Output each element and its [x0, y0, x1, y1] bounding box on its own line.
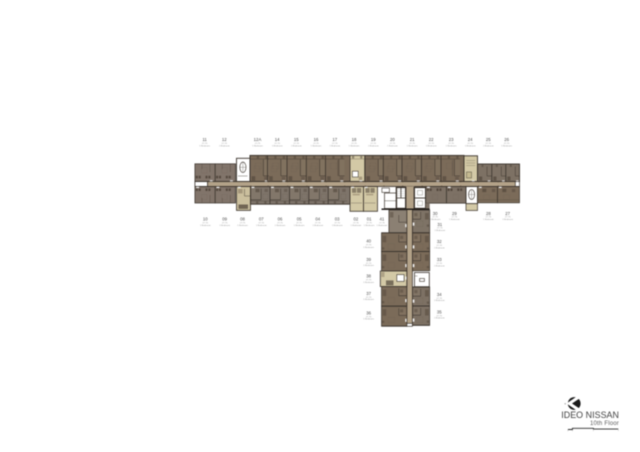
svg-text:1 Bedroom: 1 Bedroom [502, 218, 513, 221]
svg-text:09: 09 [222, 217, 227, 222]
svg-text:1 Bedroom: 1 Bedroom [434, 229, 445, 232]
svg-text:16: 16 [314, 137, 319, 142]
svg-text:10: 10 [203, 217, 208, 222]
svg-text:11: 11 [202, 137, 207, 142]
svg-text:1 Bedroom: 1 Bedroom [434, 246, 445, 249]
svg-text:32: 32 [437, 239, 442, 244]
svg-text:1 Bedroom: 1 Bedroom [329, 144, 340, 147]
svg-text:37: 37 [366, 291, 371, 296]
svg-text:36: 36 [366, 310, 371, 315]
svg-text:1 Bedroom: 1 Bedroom [363, 246, 374, 249]
svg-text:10th Floor: 10th Floor [590, 421, 619, 427]
svg-text:05: 05 [297, 217, 302, 222]
svg-text:1 Bedroom: 1 Bedroom [311, 144, 322, 147]
svg-text:12A: 12A [254, 137, 262, 142]
svg-text:1 Bedroom: 1 Bedroom [219, 224, 230, 227]
svg-text:12: 12 [222, 137, 227, 142]
svg-text:1 Bedroom: 1 Bedroom [363, 281, 374, 284]
svg-text:1 Bedroom: 1 Bedroom [349, 144, 360, 147]
svg-text:25: 25 [486, 137, 491, 142]
svg-text:17: 17 [332, 137, 337, 142]
svg-text:1 Bedroom: 1 Bedroom [199, 144, 210, 147]
svg-text:26: 26 [504, 137, 509, 142]
svg-text:08: 08 [240, 217, 245, 222]
svg-text:1 Bedroom: 1 Bedroom [294, 224, 305, 227]
svg-text:1 Bedroom: 1 Bedroom [363, 264, 374, 267]
svg-text:22: 22 [429, 137, 434, 142]
svg-text:07: 07 [259, 217, 264, 222]
svg-text:18: 18 [352, 137, 357, 142]
svg-text:1 Bedroom: 1 Bedroom [252, 144, 263, 147]
svg-text:23: 23 [449, 137, 454, 142]
svg-text:27: 27 [505, 211, 510, 216]
svg-text:35: 35 [437, 310, 442, 315]
svg-text:38: 38 [366, 274, 371, 279]
svg-text:1 Bedroom: 1 Bedroom [434, 299, 445, 302]
svg-text:15: 15 [294, 137, 299, 142]
svg-text:1 Bedroom: 1 Bedroom [237, 224, 248, 227]
svg-text:1 Bedroom: 1 Bedroom [256, 224, 267, 227]
svg-text:1 Bedroom: 1 Bedroom [434, 317, 445, 320]
svg-text:1 Bedroom: 1 Bedroom [465, 144, 476, 147]
svg-text:1 Bedroom: 1 Bedroom [272, 144, 283, 147]
svg-text:1 Bedroom: 1 Bedroom [363, 298, 374, 301]
svg-text:41: 41 [380, 217, 385, 222]
svg-text:1 Bedroom: 1 Bedroom [332, 224, 343, 227]
svg-text:1 Bedroom: 1 Bedroom [200, 224, 211, 227]
svg-text:1 Bedroom: 1 Bedroom [483, 218, 494, 221]
svg-text:04: 04 [315, 217, 320, 222]
svg-text:1 Bedroom: 1 Bedroom [364, 224, 375, 227]
svg-text:21: 21 [410, 137, 415, 142]
svg-text:29: 29 [452, 211, 457, 216]
svg-text:40: 40 [366, 239, 371, 244]
svg-text:33: 33 [437, 257, 442, 262]
svg-text:1 Bedroom: 1 Bedroom [407, 144, 418, 147]
svg-text:1 Bedroom: 1 Bedroom [351, 224, 362, 227]
svg-text:06: 06 [278, 217, 283, 222]
svg-text:14: 14 [275, 137, 280, 142]
svg-text:1 Bedroom: 1 Bedroom [312, 224, 323, 227]
svg-text:39: 39 [366, 257, 371, 262]
svg-text:IDEO NISSAN: IDEO NISSAN [561, 410, 619, 420]
svg-text:1 Bedroom: 1 Bedroom [275, 224, 286, 227]
svg-text:20: 20 [390, 137, 395, 142]
svg-text:1 Bedroom: 1 Bedroom [449, 218, 460, 221]
svg-text:28: 28 [486, 211, 491, 216]
svg-text:1 Bedroom: 1 Bedroom [219, 144, 230, 147]
svg-text:1 Bedroom: 1 Bedroom [430, 218, 441, 221]
svg-text:1 Bedroom: 1 Bedroom [291, 144, 302, 147]
svg-text:34: 34 [437, 292, 442, 297]
svg-text:24: 24 [468, 137, 473, 142]
svg-text:1 Bedroom: 1 Bedroom [501, 144, 512, 147]
svg-text:1 Bedroom: 1 Bedroom [426, 144, 437, 147]
svg-text:1 Bedroom: 1 Bedroom [483, 144, 494, 147]
svg-text:19: 19 [371, 137, 376, 142]
svg-text:31: 31 [437, 222, 442, 227]
svg-text:02: 02 [354, 217, 359, 222]
svg-text:1 Bedroom: 1 Bedroom [446, 144, 457, 147]
svg-text:1 Bedroom: 1 Bedroom [363, 318, 374, 321]
svg-text:1 Bedroom: 1 Bedroom [387, 144, 398, 147]
svg-text:01: 01 [367, 217, 372, 222]
svg-text:1 Bedroom: 1 Bedroom [377, 224, 388, 227]
svg-text:03: 03 [335, 217, 340, 222]
svg-text:30: 30 [433, 211, 438, 216]
svg-text:1 Bedroom: 1 Bedroom [368, 144, 379, 147]
svg-text:1 Bedroom: 1 Bedroom [434, 264, 445, 267]
